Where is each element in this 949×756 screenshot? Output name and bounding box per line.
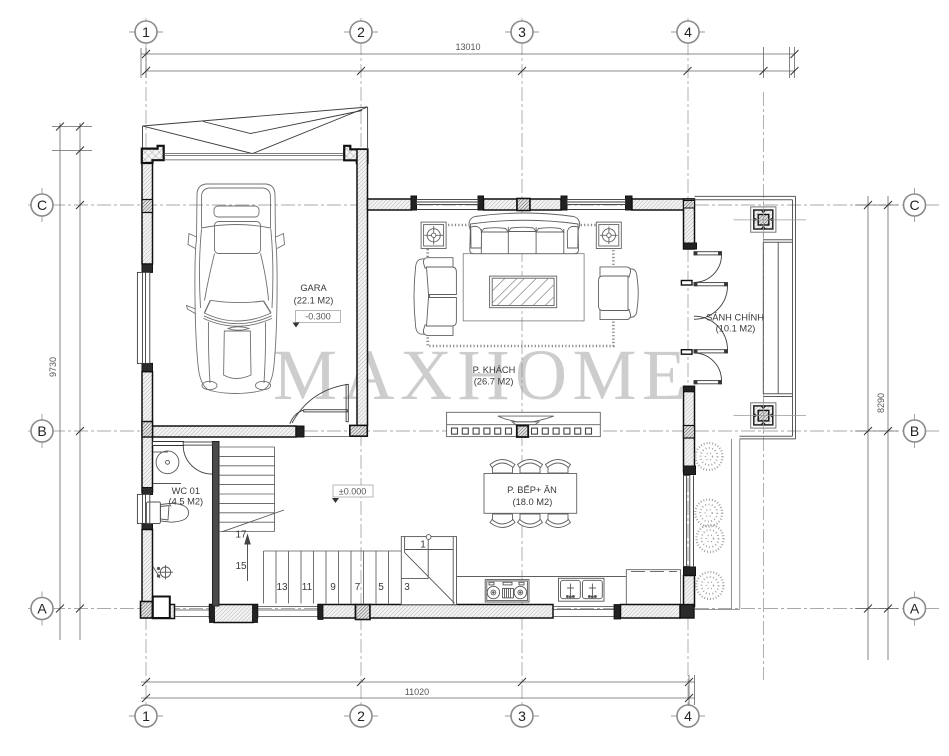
svg-text:SẢNH CHÍNH: SẢNH CHÍNH [706, 312, 764, 323]
svg-text:9: 9 [330, 582, 336, 593]
svg-text:(26.7 M2): (26.7 M2) [474, 377, 514, 387]
svg-text:13010: 13010 [455, 42, 480, 52]
svg-text:WC 01: WC 01 [172, 486, 200, 496]
svg-text:3: 3 [518, 708, 526, 724]
svg-text:2: 2 [357, 24, 365, 40]
svg-text:(18.0 M2): (18.0 M2) [513, 497, 553, 507]
svg-text:B: B [37, 423, 46, 439]
svg-text:±0.000: ±0.000 [339, 487, 366, 497]
svg-text:3: 3 [518, 24, 526, 40]
svg-text:P. KHÁCH: P. KHÁCH [473, 365, 516, 375]
svg-text:GARA: GARA [300, 283, 327, 293]
svg-text:3: 3 [404, 582, 410, 593]
svg-text:A: A [910, 601, 920, 617]
svg-text:1: 1 [142, 708, 150, 724]
svg-text:(4.5 M2): (4.5 M2) [168, 497, 203, 507]
svg-text:15: 15 [235, 561, 247, 572]
svg-text:A: A [37, 601, 47, 617]
svg-text:C: C [909, 197, 919, 213]
svg-text:1: 1 [142, 24, 150, 40]
svg-text:5: 5 [378, 582, 384, 593]
svg-text:17: 17 [235, 530, 247, 541]
svg-text:C: C [37, 197, 47, 213]
svg-text:B: B [910, 423, 919, 439]
svg-text:(22.1 M2): (22.1 M2) [294, 296, 334, 306]
svg-text:2: 2 [357, 708, 365, 724]
svg-text:8290: 8290 [876, 393, 886, 413]
svg-text:13: 13 [276, 582, 288, 593]
svg-text:4: 4 [684, 24, 692, 40]
svg-text:1: 1 [420, 540, 426, 551]
svg-text:7: 7 [355, 582, 361, 593]
svg-text:(10.1 M2): (10.1 M2) [716, 324, 756, 334]
svg-text:11: 11 [302, 582, 313, 593]
svg-text:11020: 11020 [405, 687, 429, 697]
svg-text:-0.300: -0.300 [305, 312, 331, 322]
svg-text:MAXHOME: MAXHOME [273, 335, 692, 415]
svg-text:9730: 9730 [48, 357, 58, 377]
svg-text:P. BẾP+ ĂN: P. BẾP+ ĂN [507, 485, 557, 495]
svg-text:4: 4 [684, 708, 692, 724]
